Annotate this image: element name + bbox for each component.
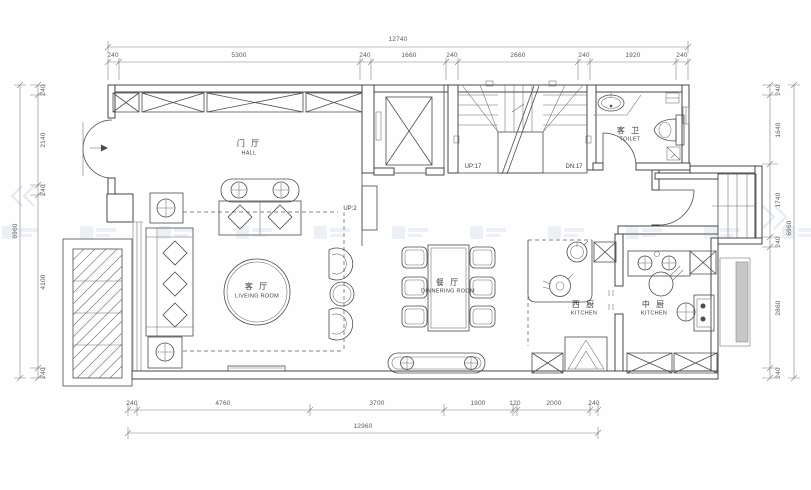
dim-bottom-seg: 3700 [369, 401, 384, 408]
room-label-west-kitchen-en: KITCHEN [571, 311, 597, 317]
dim-left-seg: 240 [41, 367, 48, 378]
round-rug [224, 259, 290, 325]
room-label-dining-cn: 餐 厅 [436, 279, 460, 287]
dim-left-seg: 240 [41, 184, 48, 195]
room-label-living-cn: 客 厅 [245, 283, 269, 291]
dim-right-seg: 2860 [776, 300, 783, 315]
stair-up-label: UP:17 [465, 164, 482, 170]
room-label-dining-en: DINNERING ROOM [421, 289, 475, 295]
dim-top-seg: 1920 [625, 53, 640, 60]
stove-burner-icon [638, 252, 676, 271]
dim-top-seg: 240 [446, 53, 457, 60]
dim-top-seg: 240 [676, 53, 687, 60]
dining-furniture [388, 245, 495, 373]
dim-left-seg: 240 [41, 84, 48, 95]
toilet-icon [654, 115, 684, 145]
dining-chair [402, 247, 427, 268]
speaker-box [148, 337, 182, 368]
room-label-hall-cn: 门 厅 [237, 140, 261, 148]
window-bench [388, 353, 485, 373]
dim-bottom-seg: 240 [126, 401, 137, 408]
dim-top-seg: 1660 [401, 53, 416, 60]
dim-right-seg: 240 [776, 236, 783, 247]
stair-down-label: DN:17 [565, 164, 582, 170]
dim-right-seg: 1640 [776, 122, 783, 137]
dim-left-seg: 2140 [41, 132, 48, 147]
dim-top-seg: 240 [107, 53, 118, 60]
dim-bottom-seg: 240 [588, 401, 599, 408]
vestibule-door [659, 190, 694, 225]
side-table [330, 282, 354, 306]
floor-plan-canvas: 12740 240 5300 240 1660 240 2660 240 192… [0, 0, 811, 490]
hall-sofa [219, 179, 301, 235]
dining-chair [470, 247, 495, 268]
dim-bottom-seg: 120 [509, 401, 520, 408]
wok-icon [649, 266, 683, 296]
side-sofa [146, 228, 193, 336]
dim-left-seg: 4100 [41, 274, 48, 289]
dim-top-seg: 240 [359, 53, 370, 60]
dim-bottom-seg: 4760 [215, 401, 230, 408]
walls [107, 85, 762, 379]
staircase [454, 81, 591, 174]
elevator [374, 85, 444, 175]
armchair [329, 308, 353, 340]
corner-cabinet [565, 337, 607, 371]
dim-top-seg: 2660 [510, 53, 525, 60]
stair-up2-label: UP:2 [343, 206, 356, 212]
dim-right-seg: 1740 [776, 192, 783, 207]
kitchen-sink-icon [677, 295, 714, 331]
dining-chair [470, 306, 495, 327]
room-label-chinese-kitchen-en: KITCHEN [641, 311, 667, 317]
speaker-box [150, 193, 183, 223]
balcony [63, 239, 132, 386]
dim-top-seg: 5300 [231, 53, 246, 60]
dim-top-overall: 12740 [388, 37, 407, 44]
dim-bottom-seg: 1900 [470, 401, 485, 408]
dining-chair [402, 306, 427, 327]
dim-right-seg: 240 [776, 367, 783, 378]
floor-drain-icon [667, 147, 680, 160]
dim-left-overall: 6960 [13, 223, 20, 238]
dim-right-overall: 6960 [787, 220, 794, 235]
dim-right-seg: 240 [776, 84, 783, 95]
room-label-toilet-en: TOILET [620, 137, 641, 143]
room-label-toilet-cn: 客 卫 [617, 127, 641, 135]
room-label-chinese-kitchen-cn: 中 厨 [642, 301, 666, 309]
round-sink-icon [567, 241, 588, 262]
dim-bottom-overall: 12960 [353, 424, 372, 431]
armchair [329, 248, 353, 280]
room-label-living-en: LIVEING ROOM [235, 294, 279, 300]
appliance-icon [543, 274, 573, 297]
dim-bottom-seg: 2000 [546, 401, 561, 408]
room-label-hall-en: HALL [242, 151, 257, 157]
room-label-west-kitchen-cn: 西 厨 [572, 301, 596, 309]
dim-top-seg: 240 [578, 53, 589, 60]
tv-cabinet [228, 366, 285, 371]
hall-cabinets [113, 93, 362, 112]
floor-plan-drawing [0, 0, 811, 490]
entry-double-door [83, 120, 112, 178]
entry-arrow-icon [101, 145, 108, 152]
